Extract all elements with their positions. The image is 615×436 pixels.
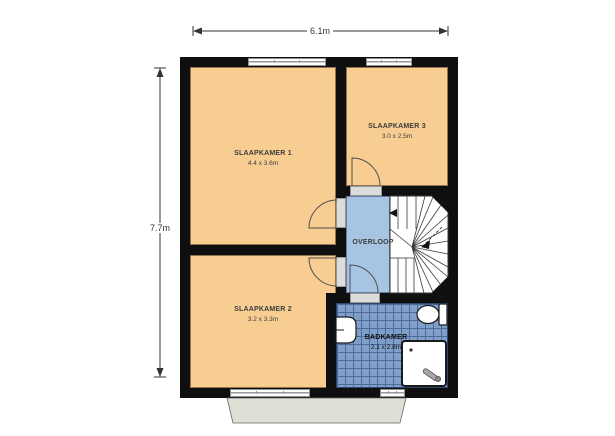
width-dimension-label: 6.1m — [307, 26, 333, 36]
room-label-slaapkamer-1: SLAAPKAMER 1 4.4 x 3.6m — [190, 149, 336, 168]
room-size: 2.1 x 2.8m — [336, 343, 436, 352]
wall-badkamer-north — [326, 293, 448, 303]
window-south-slaapkamer2 — [230, 389, 310, 397]
wall-slaapkamer1-slaapkamer2 — [180, 245, 346, 255]
room-name: BADKAMER — [336, 333, 436, 342]
room-size: 4.4 x 3.6m — [190, 159, 336, 168]
window-south-badkamer — [380, 389, 405, 397]
room-label-slaapkamer-2: SLAAPKAMER 2 3.2 x 3.3m — [190, 305, 336, 324]
roof-ledge — [227, 398, 406, 423]
room-label-overloop: OVERLOOP — [336, 238, 410, 247]
room-size: 3.2 x 3.3m — [190, 315, 336, 324]
door-opening-slaapkamer-2 — [336, 257, 346, 287]
room-label-badkamer: BADKAMER 2.1 x 2.8m — [336, 333, 436, 352]
height-dimension-label: 7.7m — [147, 223, 173, 233]
floor-plan: 6.1m 7.7m SLAAPKAMER 1 4.4 x 3.6m SLAAPK… — [0, 0, 615, 436]
room-size: 3.0 x 2.5m — [346, 132, 448, 141]
room-name: SLAAPKAMER 1 — [190, 149, 336, 158]
door-opening-slaapkamer-1 — [336, 198, 346, 228]
door-opening-badkamer — [350, 293, 380, 303]
room-name: SLAAPKAMER 2 — [190, 305, 336, 314]
room-name: OVERLOOP — [336, 238, 410, 247]
door-opening-slaapkamer-3 — [350, 186, 382, 196]
window-north-slaapkamer1 — [248, 58, 326, 66]
window-north-slaapkamer3 — [366, 58, 412, 66]
room-name: SLAAPKAMER 3 — [346, 122, 448, 131]
room-label-slaapkamer-3: SLAAPKAMER 3 3.0 x 2.5m — [346, 122, 448, 141]
